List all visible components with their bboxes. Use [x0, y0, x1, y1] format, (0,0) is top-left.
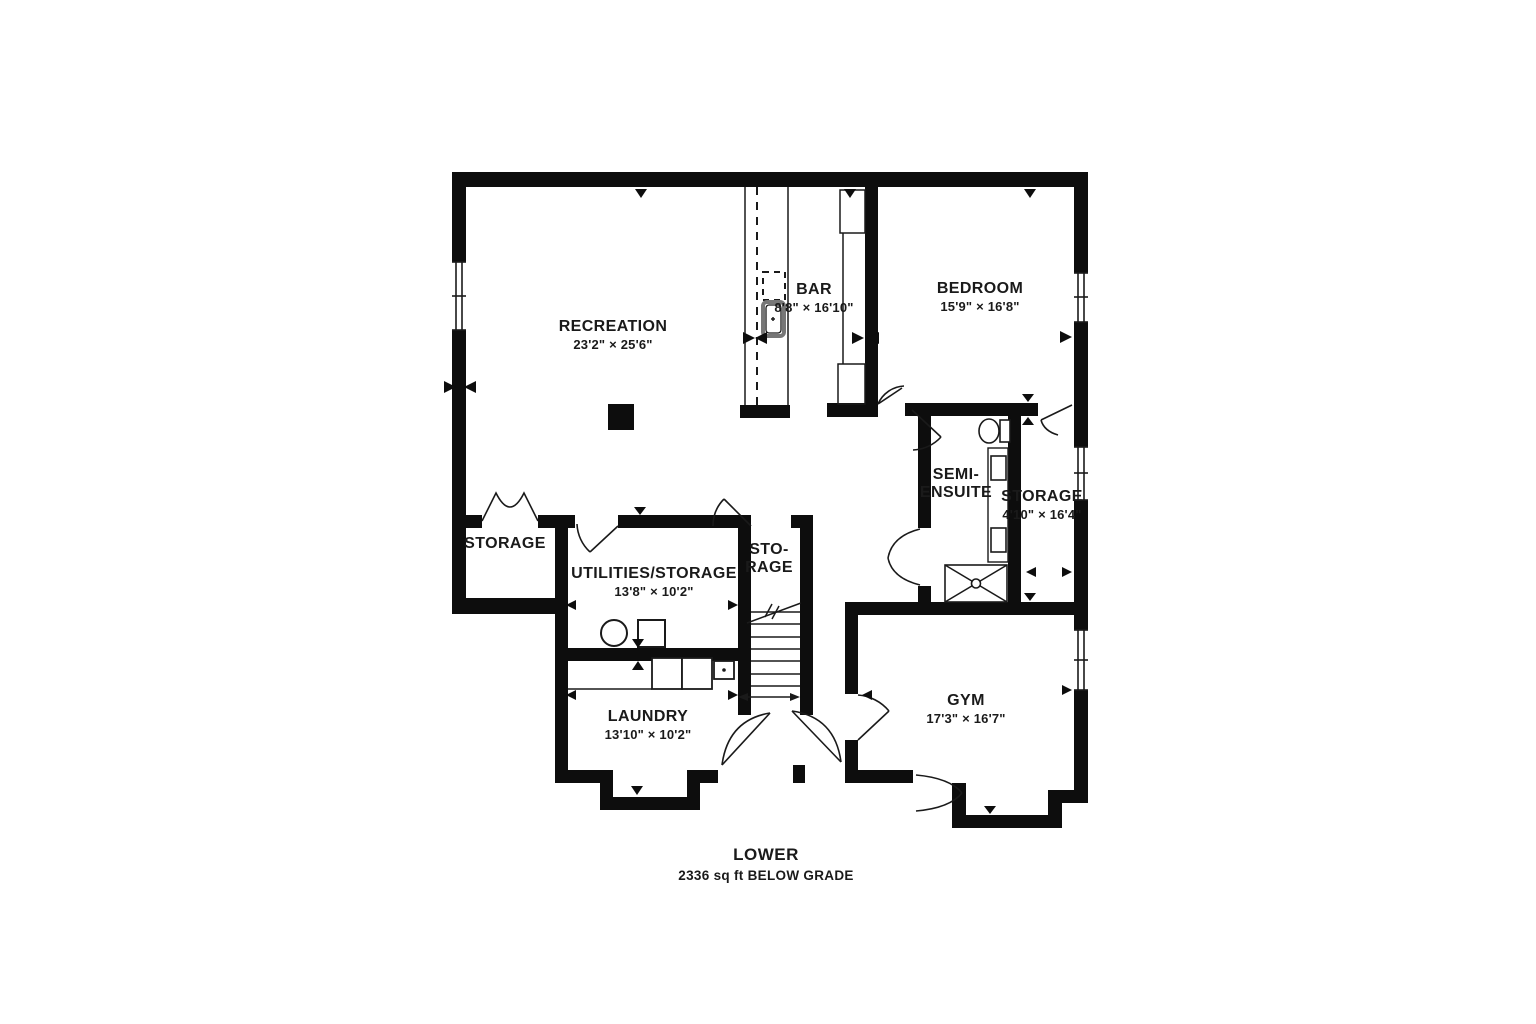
dryer-icon	[682, 658, 712, 689]
bar-back-counter	[838, 190, 865, 404]
window	[1074, 273, 1088, 322]
stair-break-line	[747, 603, 801, 623]
shower-icon	[945, 565, 1007, 602]
column	[608, 404, 634, 430]
plan-subtitle: 2336 sq ft BELOW GRADE	[678, 868, 853, 883]
door-arc	[858, 695, 889, 740]
bar-counter	[745, 187, 788, 405]
vanity-sink-icon	[988, 448, 1008, 562]
door-arc	[577, 524, 618, 552]
water-heater-icon	[638, 620, 665, 647]
stair-opening-arrow	[738, 693, 800, 701]
plan-title: LOWER	[678, 845, 853, 865]
door-arc	[722, 711, 841, 765]
laundry-fixtures	[568, 658, 734, 689]
ensuite-fixtures	[945, 419, 1010, 602]
door-arc	[878, 386, 904, 404]
utilities-fixtures	[601, 620, 665, 647]
washer-icon	[652, 658, 682, 689]
toilet-icon	[979, 419, 1010, 443]
plan-title-block: LOWER 2336 sq ft BELOW GRADE	[678, 845, 853, 883]
door-arc	[482, 493, 538, 521]
door-arc	[1041, 405, 1072, 435]
window	[1074, 630, 1088, 690]
sump-icon	[601, 620, 627, 646]
floor-plan-page: RECREATION 23'2" × 25'6" BAR 8'8" × 16'1…	[0, 0, 1536, 1024]
bar-fridge-icon	[763, 272, 785, 300]
window	[1074, 447, 1088, 500]
window	[452, 262, 466, 330]
door-arc	[888, 529, 920, 585]
